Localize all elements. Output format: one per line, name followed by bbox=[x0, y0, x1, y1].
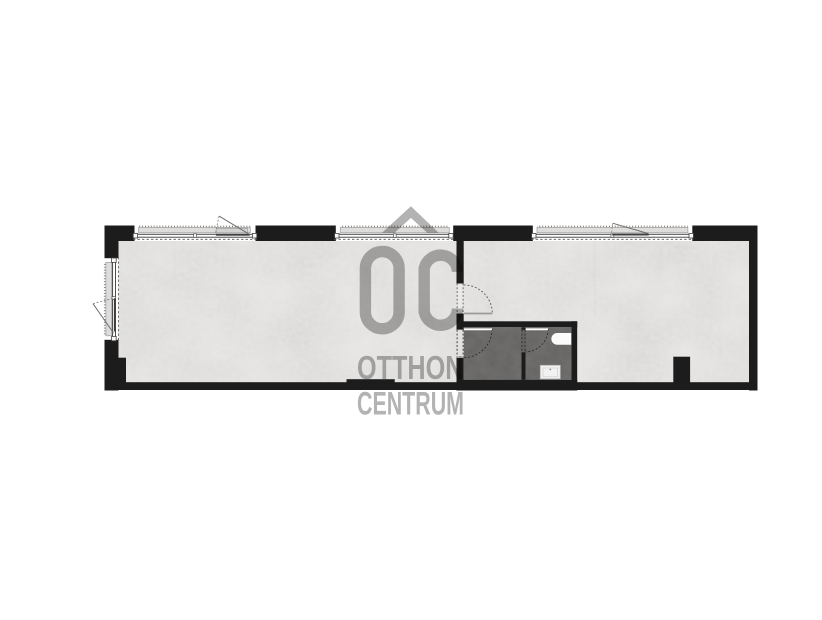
svg-text:CENTRUM: CENTRUM bbox=[357, 386, 464, 422]
svg-text:OTTHON: OTTHON bbox=[357, 349, 464, 386]
